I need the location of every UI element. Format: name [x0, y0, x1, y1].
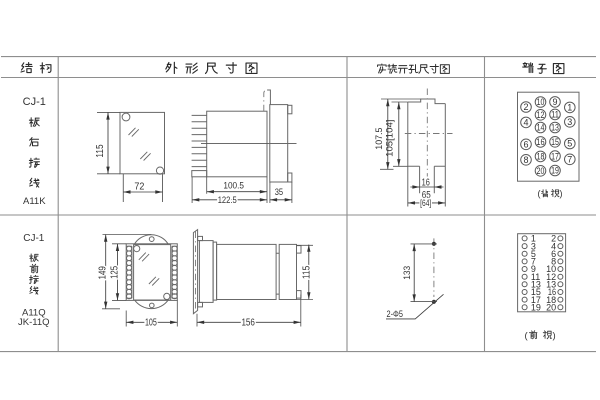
- svg-text:16: 16: [536, 137, 544, 147]
- svg-text:72: 72: [134, 181, 144, 192]
- svg-text:19: 19: [531, 303, 541, 313]
- svg-text:JK-11Q: JK-11Q: [18, 317, 50, 328]
- svg-text:9: 9: [552, 97, 557, 107]
- svg-text:105: 105: [145, 317, 157, 328]
- svg-text:10: 10: [537, 97, 545, 107]
- svg-text:8: 8: [523, 155, 528, 165]
- svg-text:(: (: [525, 331, 529, 342]
- svg-text:156: 156: [241, 318, 255, 329]
- svg-text:2-Φ5: 2-Φ5: [387, 309, 404, 320]
- svg-text:5: 5: [567, 139, 572, 149]
- svg-text:11: 11: [551, 110, 559, 120]
- svg-text:2: 2: [523, 102, 528, 112]
- svg-text:1: 1: [567, 103, 572, 113]
- svg-text:15: 15: [551, 137, 559, 147]
- svg-text:13: 13: [551, 123, 559, 133]
- svg-text:20: 20: [537, 166, 545, 176]
- svg-text:100.5: 100.5: [223, 180, 244, 191]
- svg-text:): ): [560, 189, 563, 199]
- svg-text:CJ-1: CJ-1: [23, 233, 45, 244]
- svg-text:4: 4: [523, 118, 528, 128]
- svg-text:16: 16: [422, 178, 431, 189]
- svg-text:12: 12: [537, 110, 545, 120]
- svg-text:122.5: 122.5: [218, 195, 237, 206]
- svg-text:[64]: [64]: [420, 198, 431, 209]
- svg-text:35: 35: [275, 187, 283, 198]
- svg-text:133: 133: [402, 266, 413, 280]
- svg-text:CJ-1: CJ-1: [23, 96, 46, 108]
- svg-text:14: 14: [537, 123, 545, 133]
- svg-text:A11K: A11K: [23, 196, 46, 207]
- svg-text:(: (: [538, 189, 541, 199]
- svg-text:3: 3: [567, 117, 572, 127]
- svg-text:18: 18: [537, 152, 545, 162]
- svg-text:19: 19: [551, 166, 559, 176]
- svg-text:105[104]: 105[104]: [384, 120, 395, 157]
- svg-text:20: 20: [546, 303, 556, 313]
- svg-text:125: 125: [110, 265, 121, 278]
- svg-text:): ): [553, 331, 556, 342]
- svg-text:17: 17: [551, 151, 559, 161]
- svg-text:115: 115: [301, 265, 312, 279]
- svg-text:6: 6: [523, 140, 528, 150]
- svg-text:149: 149: [98, 266, 109, 279]
- svg-text:7: 7: [567, 155, 572, 165]
- svg-text:115: 115: [95, 144, 106, 158]
